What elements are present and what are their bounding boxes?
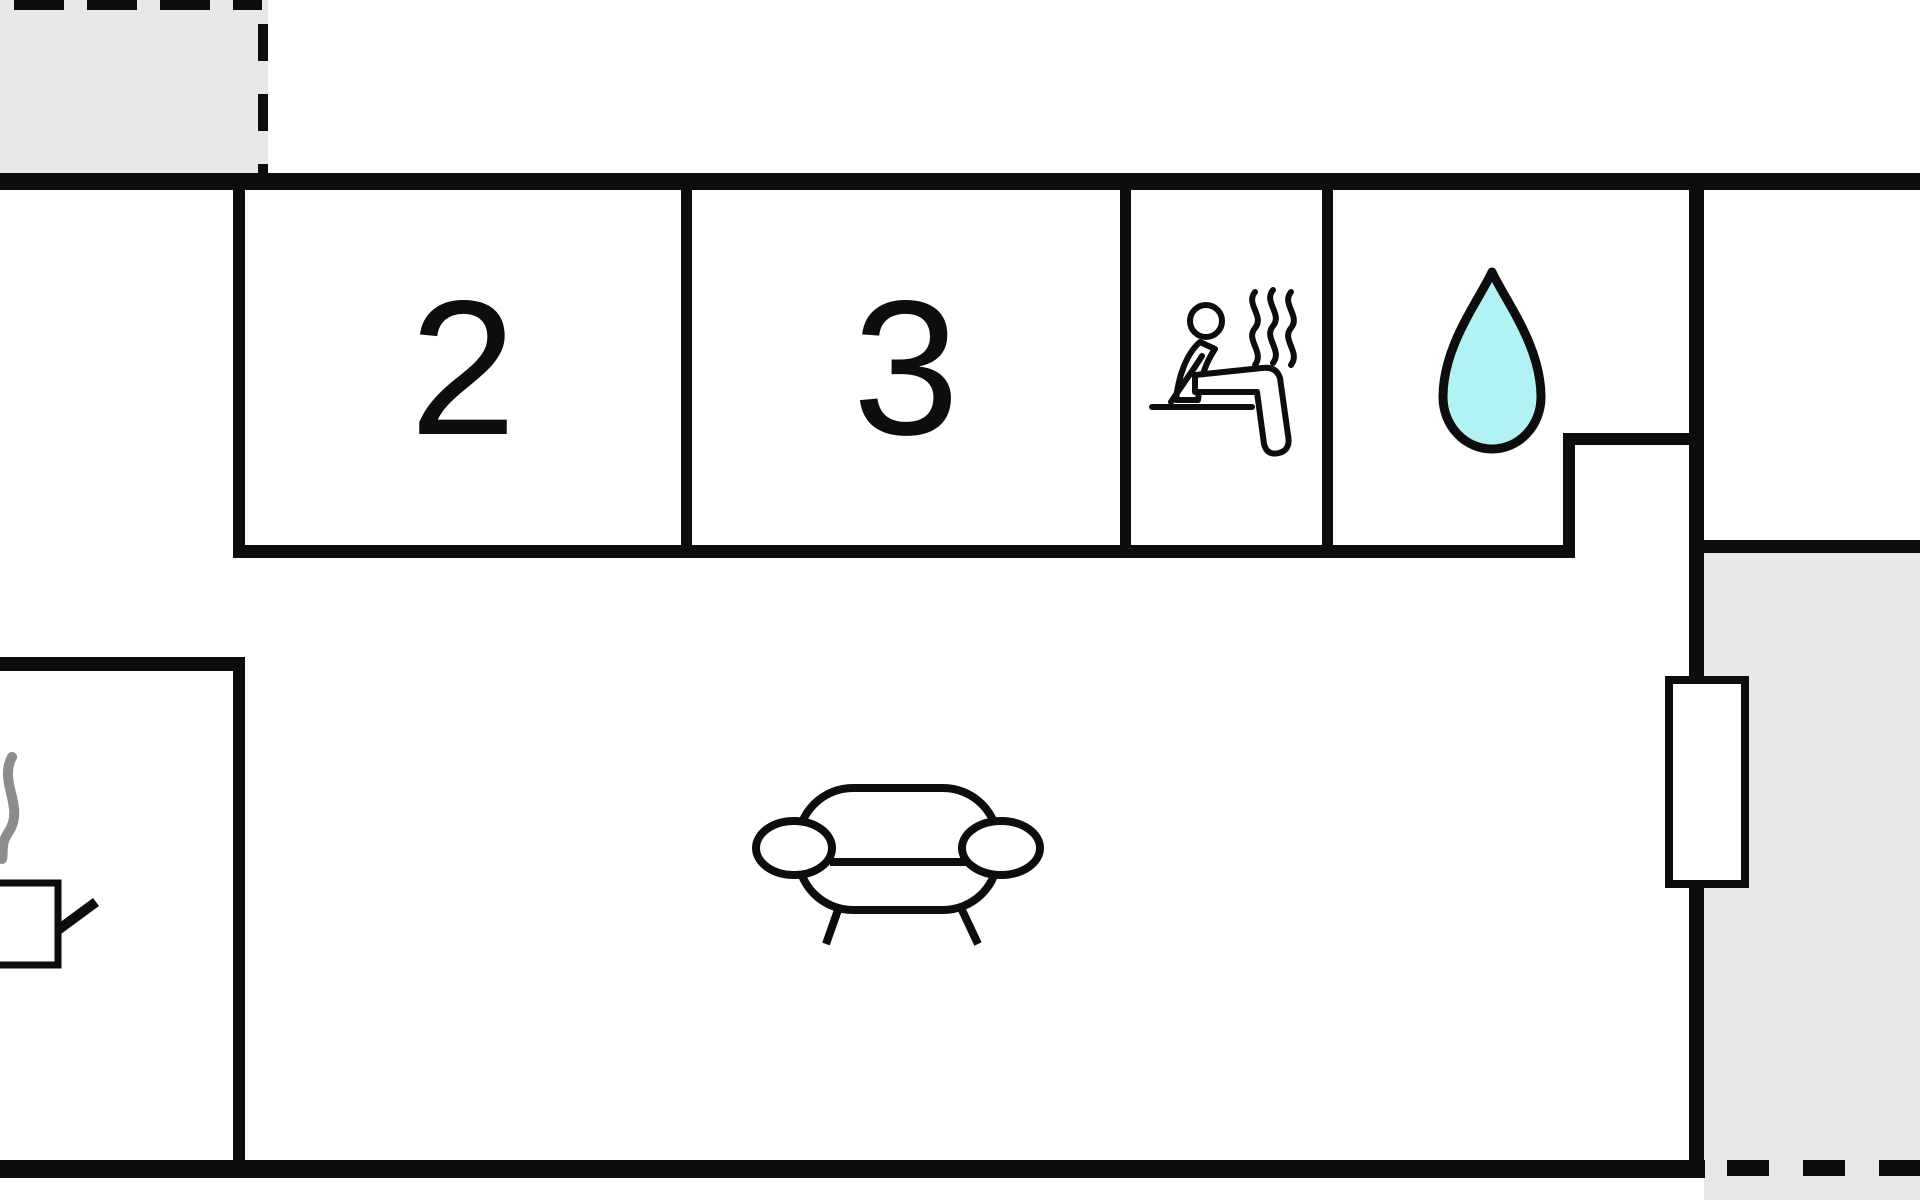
wall-step-top (1563, 433, 1703, 445)
person-leg (1195, 368, 1289, 454)
terrace-top-left (0, 0, 268, 173)
sofa-leg-right (962, 910, 978, 944)
sofa-icon (750, 780, 1055, 955)
heat-wave-2 (1270, 290, 1276, 363)
wall-bedroom2-left (233, 190, 245, 555)
sofa-leg-left (826, 910, 838, 944)
wall-terrace-top (1689, 540, 1920, 553)
terrace-door (1665, 676, 1749, 888)
bedroom-3-label: 3 (853, 272, 960, 464)
water-drop-icon (1435, 262, 1547, 457)
wall-step-riser (1563, 433, 1575, 558)
bedroom-2-label: 2 (410, 272, 517, 464)
heat-wave-3 (1288, 292, 1294, 365)
stove-icon (0, 745, 108, 980)
stove-smoke (2, 757, 14, 859)
sofa-armrest-left (756, 821, 832, 875)
stove-pot (0, 883, 58, 965)
stove-pot-handle (58, 902, 96, 930)
room-bedroom-2: 2 (245, 190, 681, 545)
floor-plan: 2 3 (0, 0, 1920, 1200)
wall-divider-bedroom2-bedroom3 (681, 190, 692, 558)
heat-wave-1 (1252, 292, 1258, 365)
person-head (1190, 305, 1222, 337)
terrace-top-left-dashed-edge-right (258, 24, 268, 173)
wall-divider-bedroom3-sauna (1120, 190, 1131, 558)
wall-exterior-top (0, 173, 1920, 190)
wall-divider-sauna-bathroom (1322, 190, 1333, 558)
terrace-bottom-right-dashed-edge-bottom (1727, 1160, 1920, 1176)
water-drop-shape (1443, 272, 1541, 449)
wall-kitchen-right (233, 657, 245, 1178)
wall-bedroom-row-bottom (233, 545, 1575, 558)
terrace-top-left-dashed-edge-top (14, 0, 262, 10)
sauna-person-icon (1140, 280, 1310, 465)
wall-kitchen-top (0, 657, 245, 671)
sofa-armrest-right (962, 821, 1040, 875)
wall-exterior-bottom (0, 1160, 1705, 1178)
room-bedroom-3: 3 (692, 190, 1120, 545)
